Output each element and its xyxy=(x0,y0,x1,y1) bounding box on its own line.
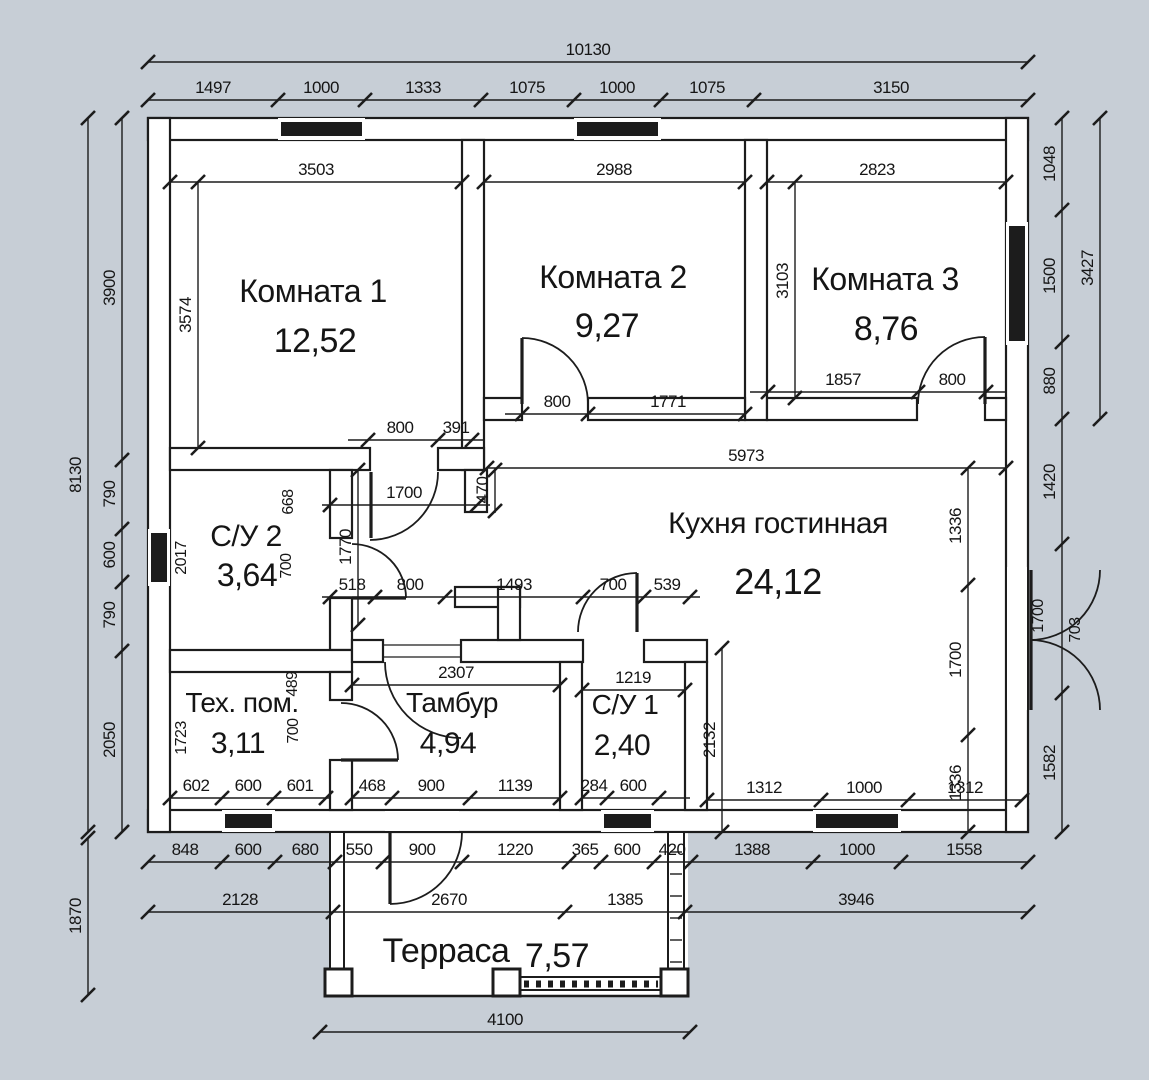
dim-label: 4100 xyxy=(487,1010,523,1029)
dim-label: 10130 xyxy=(566,40,611,59)
dim-label: 1385 xyxy=(607,890,643,909)
wall xyxy=(170,448,370,470)
terrace-post xyxy=(661,969,688,996)
dim-label: 602 xyxy=(183,776,210,795)
dim-label: 420 xyxy=(659,840,686,859)
door-opening xyxy=(1007,567,1027,710)
terrace-post xyxy=(493,969,520,996)
wall xyxy=(352,640,383,662)
dim-label: 1000 xyxy=(846,778,882,797)
dim-label: 600 xyxy=(235,840,262,859)
room-name: Тех. пом. xyxy=(185,687,298,718)
dim-label: 1700 xyxy=(946,642,965,678)
dim-label: 2670 xyxy=(431,890,467,909)
room-area: 3,64 xyxy=(217,557,277,593)
dim-label: 391 xyxy=(443,418,470,437)
floor-plan-canvas: 1013014971000133310751000107531503503298… xyxy=(0,0,1149,1080)
wall xyxy=(330,598,352,650)
dim-label: 2988 xyxy=(596,160,632,179)
dim-label: 800 xyxy=(544,392,571,411)
wall xyxy=(170,650,352,672)
room-name: Комната 2 xyxy=(539,259,686,295)
room-name: Кухня гостинная xyxy=(668,507,888,540)
dim-label: 800 xyxy=(387,418,414,437)
wall xyxy=(498,587,520,640)
dim-label: 1048 xyxy=(1040,146,1059,182)
dim-label: 1219 xyxy=(615,668,651,687)
room-name: Комната 1 xyxy=(239,273,386,309)
wall xyxy=(767,398,917,420)
dim-label: 518 xyxy=(339,575,366,594)
dim-label: 668 xyxy=(280,489,297,515)
dim-label: 600 xyxy=(614,840,641,859)
dim-label: 550 xyxy=(346,840,373,859)
room-area: 24,12 xyxy=(734,561,822,602)
wall xyxy=(745,140,767,420)
dim-label: 365 xyxy=(572,840,599,859)
dim-label: 1700 xyxy=(1030,599,1047,633)
dim-label: 800 xyxy=(939,370,966,389)
door-opening xyxy=(385,811,459,831)
dim-label: 600 xyxy=(100,542,119,569)
room-name: С/У 2 xyxy=(210,520,282,553)
dim-label: 2823 xyxy=(859,160,895,179)
terrace-post xyxy=(325,969,352,996)
wall xyxy=(484,398,522,420)
dim-label: 848 xyxy=(172,840,199,859)
room-area: 7,57 xyxy=(525,937,589,975)
dim-label: 2132 xyxy=(700,722,719,758)
dim-label: 1700 xyxy=(386,483,422,502)
dim-label: 3574 xyxy=(176,297,195,333)
wall xyxy=(461,640,583,662)
room-area: 4,94 xyxy=(420,727,476,760)
dim-label: 1420 xyxy=(1040,464,1059,500)
dim-label: 700 xyxy=(600,575,627,594)
dim-label: 1771 xyxy=(650,392,686,411)
dim-label: 600 xyxy=(620,776,647,795)
dim-label: 284 xyxy=(581,776,608,795)
dim-label: 5973 xyxy=(728,446,764,465)
wall xyxy=(560,662,582,810)
dim-label: 3103 xyxy=(773,263,792,299)
wall xyxy=(644,640,707,662)
room-name: Комната 3 xyxy=(811,261,958,297)
dim-label: 2128 xyxy=(222,890,258,909)
dim-label: 900 xyxy=(409,840,436,859)
dim-label: 2307 xyxy=(438,663,474,682)
dim-label: 470 xyxy=(473,477,492,504)
floor-plan-page: 1013014971000133310751000107531503503298… xyxy=(0,0,1149,1080)
dim-label: 1723 xyxy=(173,721,190,755)
dim-label: 1493 xyxy=(496,575,532,594)
room-area: 3,11 xyxy=(211,727,265,760)
dim-label: 1857 xyxy=(825,370,861,389)
dim-label: 680 xyxy=(292,840,319,859)
dim-label: 1075 xyxy=(509,78,545,97)
dim-label: 1336 xyxy=(946,765,965,801)
dim-label: 790 xyxy=(100,481,119,508)
room-name: Тамбур xyxy=(406,687,498,718)
room-area: 8,76 xyxy=(854,310,918,348)
dim-label: 3900 xyxy=(100,270,119,306)
dim-label: 600 xyxy=(235,776,262,795)
dim-label: 1000 xyxy=(599,78,635,97)
door-arc xyxy=(1030,640,1100,710)
room-area: 2,40 xyxy=(594,729,650,762)
dim-label: 1870 xyxy=(66,898,85,934)
dim-label: 1139 xyxy=(498,776,533,795)
room-area: 9,27 xyxy=(575,307,639,345)
dim-label: 1000 xyxy=(839,840,875,859)
dim-label: 1558 xyxy=(946,840,982,859)
dim-label: 468 xyxy=(359,776,386,795)
dim-label: 790 xyxy=(100,602,119,629)
dim-label: 1000 xyxy=(303,78,339,97)
dim-label: 1770 xyxy=(336,529,355,565)
dim-label: 900 xyxy=(418,776,445,795)
room-name: Терраса xyxy=(383,932,510,970)
dim-label: 601 xyxy=(287,776,314,795)
dim-label: 700 xyxy=(285,718,302,744)
dim-label: 800 xyxy=(397,575,424,594)
dim-label: 8130 xyxy=(66,457,85,493)
dim-label: 2050 xyxy=(100,722,119,758)
dim-label: 3427 xyxy=(1078,250,1097,286)
wall xyxy=(985,398,1006,420)
dim-label: 3946 xyxy=(838,890,874,909)
wall xyxy=(330,672,352,700)
dim-label: 700 xyxy=(278,553,295,579)
wall xyxy=(330,470,352,538)
dim-label: 1336 xyxy=(946,508,965,544)
dim-label: 1220 xyxy=(497,840,533,859)
dim-label: 1388 xyxy=(734,840,770,859)
dim-label: 703 xyxy=(1067,617,1084,643)
dim-label: 1312 xyxy=(746,778,782,797)
dim-label: 3150 xyxy=(873,78,909,97)
dim-label: 539 xyxy=(654,575,681,594)
room-area: 12,52 xyxy=(274,322,357,360)
dim-label: 3503 xyxy=(298,160,334,179)
dim-label: 1497 xyxy=(195,78,231,97)
dim-label: 1582 xyxy=(1040,745,1059,781)
wall xyxy=(148,118,170,832)
dim-label: 1500 xyxy=(1040,258,1059,294)
dim-label: 880 xyxy=(1040,368,1059,395)
building-interior xyxy=(148,118,1028,832)
dim-label: 2017 xyxy=(173,541,190,575)
dim-label: 1333 xyxy=(405,78,441,97)
dim-label: 1075 xyxy=(689,78,725,97)
wall xyxy=(438,448,484,470)
room-name: С/У 1 xyxy=(592,689,659,720)
